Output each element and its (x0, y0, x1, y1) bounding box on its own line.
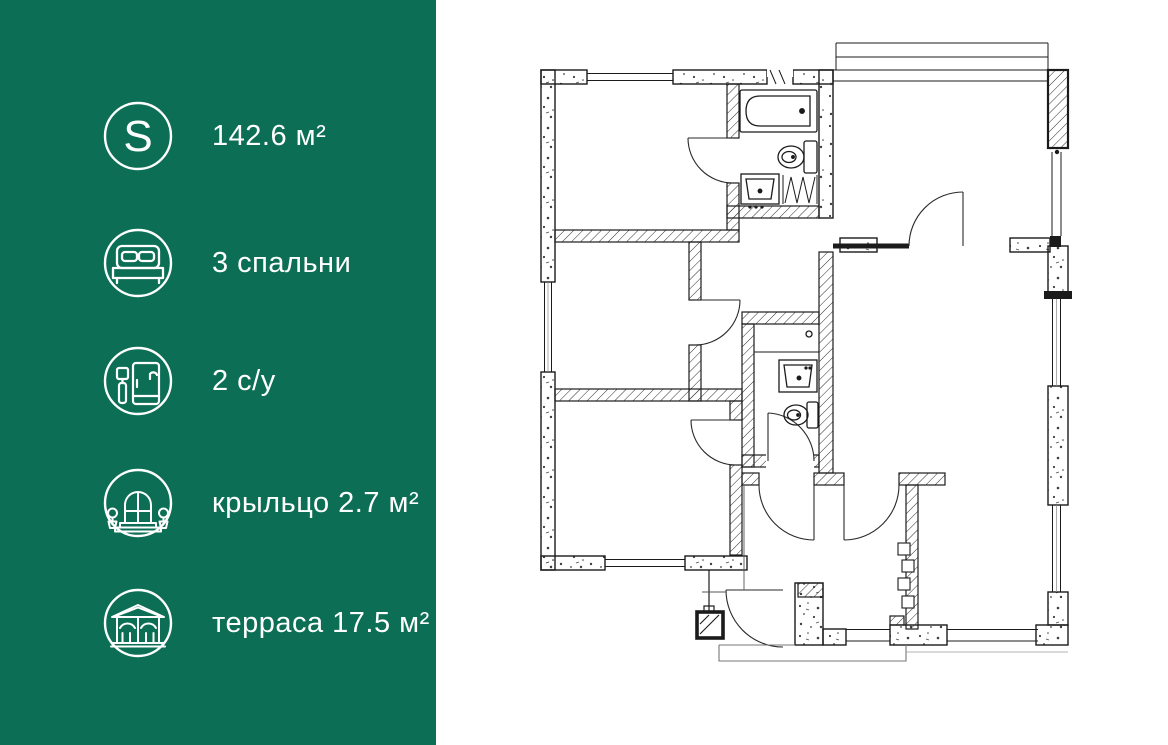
bathrooms-icon (100, 343, 176, 419)
wall-joint-square (1050, 236, 1061, 247)
interior-walls (555, 84, 945, 629)
feature-bathrooms: 2 с/у (0, 343, 436, 419)
bathroom2-door-opening (766, 454, 814, 468)
sidebar: S 142.6 м² 3 спальни (0, 0, 436, 745)
terrace-icon (100, 585, 176, 661)
porch-steps (719, 645, 906, 661)
svg-text:S: S (123, 112, 152, 161)
floor-plan-panel (436, 0, 1168, 745)
feature-label: 2 с/у (212, 343, 276, 419)
apartment-card: S 142.6 м² 3 спальни (0, 0, 1168, 745)
feature-label: 142.6 м² (212, 98, 326, 174)
right-wall-band (1044, 291, 1072, 299)
feature-total-area: S 142.6 м² (0, 98, 436, 174)
terrace-outline (836, 43, 1048, 70)
pier-joint-dot (1055, 150, 1059, 154)
vent-gap (767, 70, 793, 84)
feature-terrace: терраса 17.5 м² (0, 585, 436, 661)
area-icon: S (100, 98, 176, 174)
bedrooms-icon (100, 225, 176, 301)
feature-porch: крыльцо 2.7 м² (0, 465, 436, 541)
feature-bedrooms: 3 спальни (0, 225, 436, 301)
feature-label: 3 спальни (212, 225, 351, 301)
porch-icon (100, 465, 176, 541)
corner-glazed-pier (1048, 70, 1068, 148)
bathroom2-fixtures (754, 331, 819, 428)
floor-plan-svg (436, 0, 1168, 745)
bathroom1-fixtures (740, 90, 817, 208)
windows (545, 70, 1062, 641)
feature-label: крыльцо 2.7 м² (212, 465, 419, 541)
feature-label: терраса 17.5 м² (212, 585, 430, 661)
